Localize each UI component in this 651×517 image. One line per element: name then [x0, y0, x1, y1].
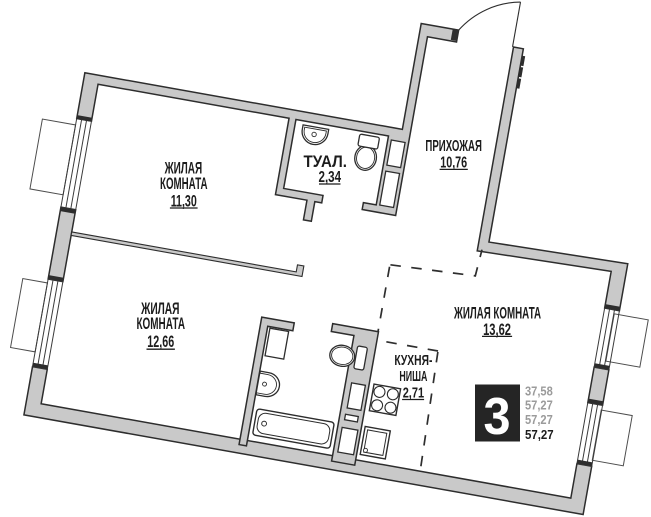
- svg-text:3: 3: [484, 388, 511, 446]
- svg-text:КОМНАТА: КОМНАТА: [160, 174, 208, 193]
- svg-text:37,58: 37,58: [525, 383, 553, 398]
- svg-text:57,27: 57,27: [525, 398, 553, 413]
- svg-text:ТУАЛ.: ТУАЛ.: [304, 152, 348, 171]
- svg-text:ПРИХОЖАЯ: ПРИХОЖАЯ: [425, 138, 482, 155]
- svg-text:НИША: НИША: [399, 368, 427, 385]
- svg-text:12,66: 12,66: [147, 332, 174, 351]
- svg-text:КОМНАТА: КОМНАТА: [137, 314, 186, 333]
- svg-text:57,27: 57,27: [525, 427, 554, 442]
- svg-text:КУХНЯ-: КУХНЯ-: [394, 352, 432, 369]
- svg-text:57,27: 57,27: [525, 412, 553, 427]
